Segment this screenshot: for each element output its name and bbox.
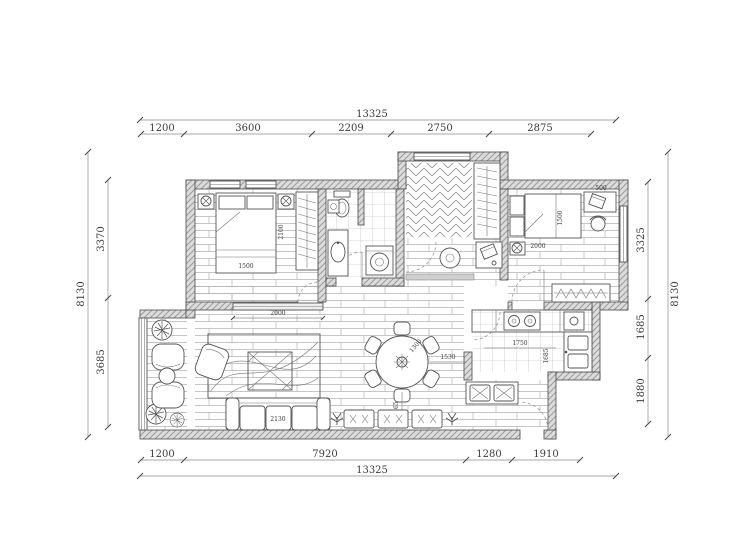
small-appliance-symbol	[564, 312, 584, 330]
dim-top-seg1: 1200	[149, 123, 174, 134]
round-table-symbol	[440, 248, 460, 268]
kitchen-counter-label: 1750	[512, 340, 527, 347]
dim-top-overall: 13325	[356, 109, 388, 120]
dimensions-right: 3325 1685 1880 8130	[636, 149, 681, 440]
desk-depth-label: 500	[595, 185, 607, 192]
dim-left-overall: 8130	[76, 281, 87, 306]
dim-bottom-seg3: 1280	[476, 449, 501, 460]
dimensions-top: 13325 1200 3600 2209 2750 2875	[137, 109, 619, 137]
lamp-right	[281, 196, 291, 206]
sofa-length-label: 2130	[270, 416, 285, 423]
dim-top-seg5: 2875	[527, 123, 552, 134]
floor-plan-page: 1500 2100	[0, 0, 740, 555]
floor-plan-canvas: 1500 2100	[0, 0, 740, 555]
lamp-left	[201, 196, 211, 206]
bed2-length-label: 2000	[530, 243, 545, 250]
low-cabinet-row	[344, 410, 442, 428]
leisure-chair-top	[152, 344, 184, 370]
dim-left-seg1: 3370	[96, 226, 107, 251]
study-window	[414, 153, 470, 160]
sink-vanity-symbol	[328, 230, 348, 276]
sideboard-symbol	[466, 382, 518, 404]
dim-right-seg1: 3325	[636, 227, 647, 252]
washing-machine-symbol	[366, 246, 393, 275]
sofa-symbol	[226, 398, 330, 430]
dim-bottom-seg1: 1200	[149, 449, 174, 460]
dim-left-seg2: 3685	[96, 349, 107, 374]
double-bed-symbol	[216, 193, 276, 273]
desk2-symbol	[584, 192, 616, 212]
wardrobe-symbol	[296, 192, 318, 270]
kitchen-sink-symbol	[564, 332, 592, 372]
dim-right-seg3: 1880	[636, 378, 647, 403]
shelf-symbol	[328, 200, 339, 213]
balcony-table	[159, 368, 175, 384]
dining-to-kitchen-label: 1530	[440, 354, 455, 361]
desk-symbol	[476, 242, 502, 268]
plant-round-bottom2	[170, 413, 184, 427]
bed2-width-label: 1500	[557, 210, 564, 225]
tv-symbol	[233, 303, 323, 310]
bed1-width-label: 1500	[238, 263, 253, 270]
tv-console-label: 2000	[270, 310, 285, 317]
study-herringbone-floor	[406, 163, 472, 237]
dim-bottom-seg4: 1910	[533, 449, 558, 460]
lamp2	[512, 243, 522, 253]
dimensions-left: 8130 3370 3685	[76, 149, 111, 440]
dim-right-seg2: 1685	[636, 314, 647, 339]
stove-symbol	[504, 312, 540, 330]
leisure-chair-bottom	[152, 382, 184, 408]
dim-bottom-overall: 13325	[356, 465, 388, 476]
kitchen-depth-label: 1685	[543, 348, 550, 363]
bedroom2-window	[620, 206, 627, 262]
closet-symbol	[474, 163, 500, 239]
dim-bottom-seg2: 7920	[312, 449, 337, 460]
plant-round-top	[152, 320, 172, 340]
dim-top-seg3: 2209	[338, 123, 363, 134]
threshold	[406, 274, 474, 280]
dim-right-overall: 8130	[670, 281, 681, 306]
dimensions-bottom: 1200 7920 1280 1910 13325	[137, 449, 619, 479]
dim-top-seg4: 2750	[427, 123, 452, 134]
bedroom1: 1500 2100	[198, 192, 318, 273]
wardrobe2-symbol	[552, 284, 610, 302]
bed1-length-label: 2100	[278, 224, 285, 239]
dim-top-seg2: 3600	[235, 123, 260, 134]
